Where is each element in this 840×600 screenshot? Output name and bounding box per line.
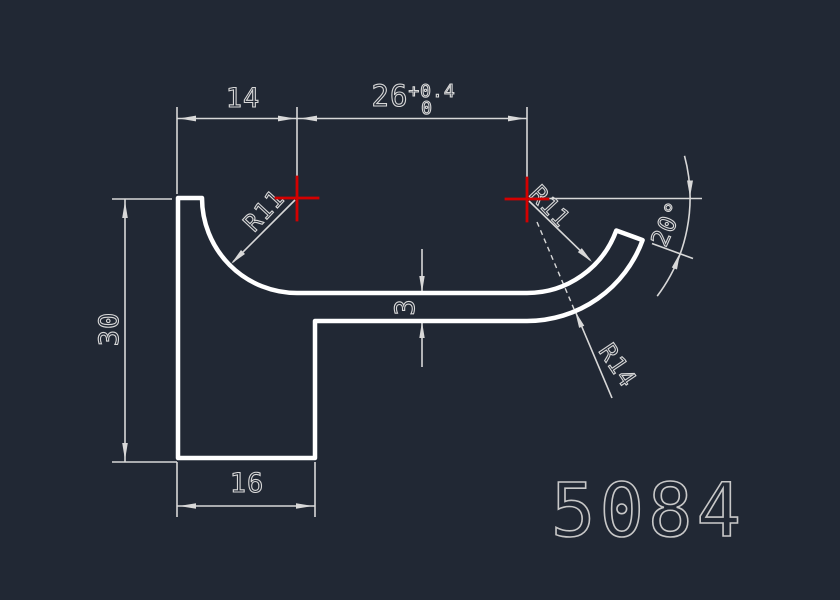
- dim-arrow: [578, 248, 592, 262]
- dim-arrow: [179, 116, 196, 122]
- dim-text-radius-left-r11: R11: [238, 184, 290, 237]
- part-number-text: 5084: [551, 468, 745, 554]
- dim-text-height-30: 30: [94, 312, 125, 347]
- dim-text-width-26: 26: [372, 79, 409, 113]
- dim-arrow: [575, 311, 584, 328]
- dim-text-tolerance-lower: 0: [421, 98, 433, 119]
- cad-drawing-canvas: 14 26 +0.4 0 30 3 16 R11 R11 R14 20° 508…: [0, 0, 840, 600]
- profile-outline-group: [178, 198, 643, 458]
- part-profile-outline: [178, 198, 643, 458]
- dim-arrow: [296, 503, 313, 509]
- center-marks: [276, 177, 548, 221]
- dim-arrow: [278, 116, 295, 122]
- dim-arrow: [672, 253, 680, 270]
- leader-radius-outer-dashed: [537, 222, 574, 309]
- dim-text-radius-outer-r14: R14: [593, 338, 642, 392]
- dim-arrow: [687, 181, 693, 198]
- dim-arrow: [419, 276, 424, 293]
- dim-arrow: [419, 322, 424, 339]
- dim-arrow: [231, 250, 245, 264]
- dim-arrow: [122, 443, 128, 460]
- drawing-svg: 14 26 +0.4 0 30 3 16 R11 R11 R14 20° 508…: [0, 0, 840, 600]
- dimension-text: 14 26 +0.4 0 30 3 16 R11 R11 R14 20°: [94, 79, 690, 499]
- dim-text-width-14: 14: [226, 83, 261, 114]
- dim-arrow: [508, 116, 525, 122]
- dim-text-radius-right-r11: R11: [524, 180, 576, 233]
- dim-text-base-16: 16: [230, 468, 265, 499]
- dim-text-thickness-3: 3: [390, 298, 421, 315]
- dim-arrow: [300, 116, 317, 122]
- dim-arrow: [179, 503, 196, 509]
- dim-arrow: [122, 201, 128, 218]
